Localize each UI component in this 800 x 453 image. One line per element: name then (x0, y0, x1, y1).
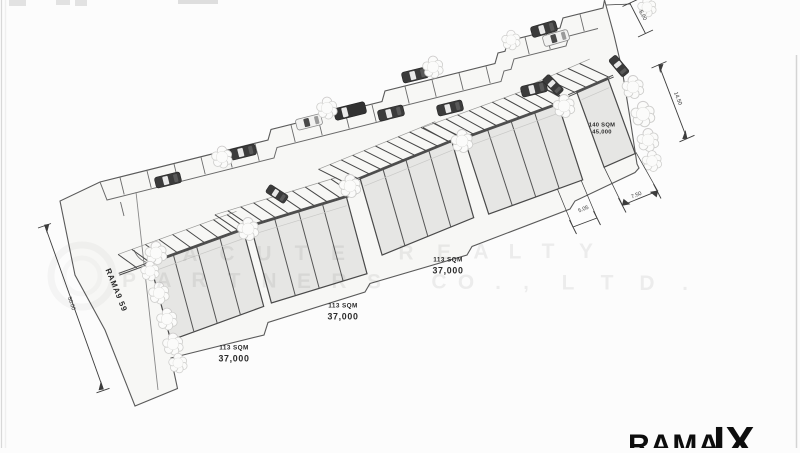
svg-text:L: L (509, 240, 522, 263)
svg-text:RAMA: RAMA (628, 429, 720, 448)
svg-text:T: T (601, 272, 614, 295)
svg-text:R: R (398, 241, 413, 264)
svg-text:N: N (261, 270, 276, 293)
svg-text:45,000: 45,000 (592, 130, 612, 136)
svg-text:S: S (367, 270, 381, 293)
svg-text:5.05: 5.05 (578, 205, 590, 215)
svg-text:A: A (182, 243, 197, 266)
svg-text:37,000: 37,000 (327, 312, 358, 322)
svg-text:C: C (219, 243, 234, 266)
svg-text:113 SQM: 113 SQM (219, 345, 248, 352)
svg-text:O: O (458, 271, 474, 294)
svg-text:E: E (437, 241, 451, 264)
svg-text:R: R (331, 270, 346, 293)
svg-text:140 SQM: 140 SQM (589, 123, 616, 129)
svg-text:.: . (495, 271, 501, 294)
svg-text:E: E (331, 242, 345, 265)
svg-text:A: A (473, 241, 488, 264)
svg-text:.: . (682, 272, 688, 295)
svg-text:T: T (542, 240, 555, 263)
svg-text:Y: Y (579, 240, 593, 263)
svg-text:R: R (191, 269, 206, 292)
svg-text:P: P (122, 269, 136, 292)
svg-text:E: E (297, 270, 311, 293)
svg-text:L: L (562, 271, 575, 294)
svg-text:37,000: 37,000 (218, 354, 249, 364)
svg-text:,: , (523, 271, 529, 294)
svg-text:IX: IX (713, 418, 755, 448)
svg-text:C: C (431, 271, 446, 294)
svg-text:A: A (156, 269, 171, 292)
svg-text:D: D (639, 272, 654, 295)
svg-text:T: T (228, 269, 241, 292)
svg-text:T: T (295, 242, 308, 265)
svg-text:U: U (256, 242, 271, 265)
svg-text:7.50: 7.50 (631, 191, 643, 201)
svg-text:113 SQM: 113 SQM (328, 303, 357, 310)
